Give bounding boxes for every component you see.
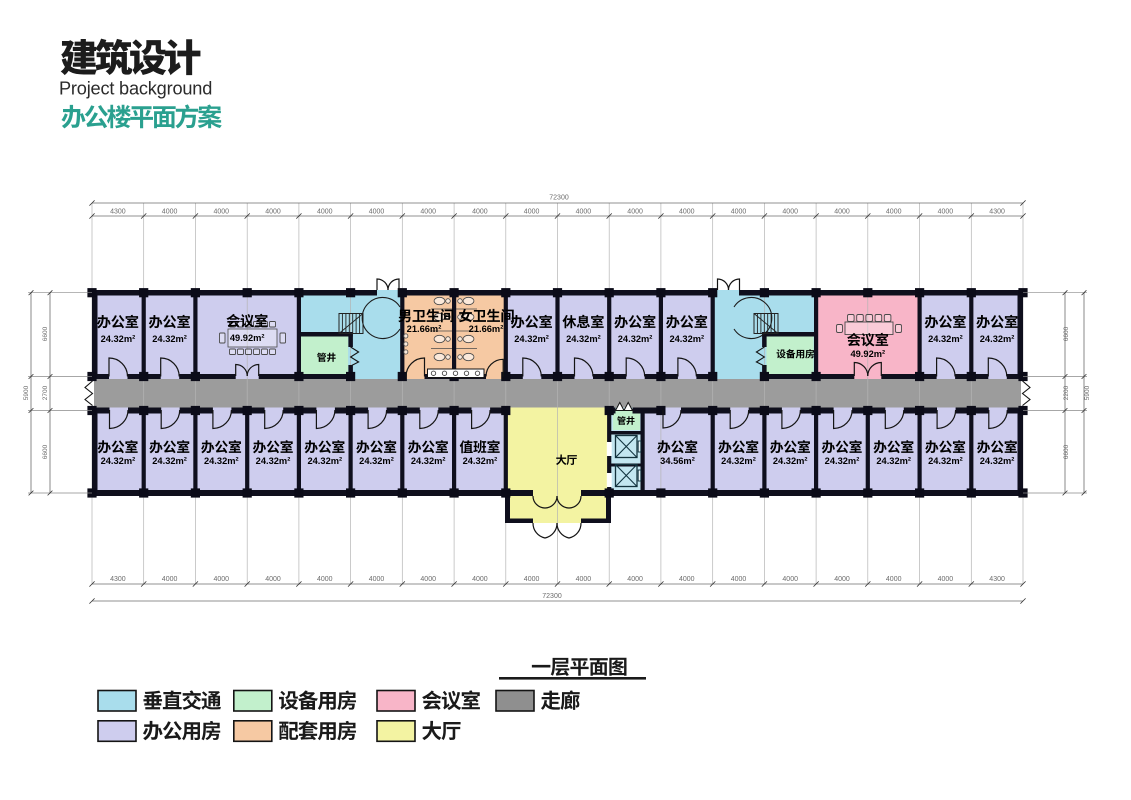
svg-text:4000: 4000 <box>524 209 540 216</box>
svg-text:4300: 4300 <box>989 209 1005 216</box>
svg-text:4300: 4300 <box>989 576 1005 583</box>
svg-text:4000: 4000 <box>782 576 798 583</box>
svg-text:24.32m²: 24.32m² <box>825 456 860 466</box>
svg-text:24.32m²: 24.32m² <box>876 456 911 466</box>
svg-text:21.66m²: 21.66m² <box>407 324 442 334</box>
svg-text:24.32m²: 24.32m² <box>463 456 498 466</box>
svg-text:6600: 6600 <box>42 444 49 459</box>
svg-text:4000: 4000 <box>214 209 230 216</box>
svg-text:4000: 4000 <box>369 209 385 216</box>
svg-text:4000: 4000 <box>472 209 488 216</box>
svg-text:21.66m²: 21.66m² <box>469 324 504 334</box>
svg-text:4000: 4000 <box>627 576 643 583</box>
svg-text:4000: 4000 <box>679 576 695 583</box>
svg-text:4000: 4000 <box>265 209 281 216</box>
svg-text:4000: 4000 <box>731 576 747 583</box>
svg-text:24.32m²: 24.32m² <box>669 334 704 344</box>
svg-text:24.32m²: 24.32m² <box>204 456 239 466</box>
svg-text:4000: 4000 <box>317 576 333 583</box>
svg-text:49.92m²: 49.92m² <box>230 333 265 343</box>
svg-text:4000: 4000 <box>627 209 643 216</box>
svg-text:4000: 4000 <box>576 576 592 583</box>
svg-text:24.32m²: 24.32m² <box>980 334 1015 344</box>
svg-text:2700: 2700 <box>42 385 49 400</box>
svg-text:6600: 6600 <box>1063 444 1070 459</box>
svg-text:4000: 4000 <box>782 209 798 216</box>
svg-text:4000: 4000 <box>162 576 178 583</box>
svg-text:24.32m²: 24.32m² <box>256 456 291 466</box>
svg-text:4000: 4000 <box>938 576 954 583</box>
svg-text:24.32m²: 24.32m² <box>411 456 446 466</box>
svg-text:24.32m²: 24.32m² <box>359 456 394 466</box>
svg-text:24.32m²: 24.32m² <box>618 334 653 344</box>
svg-text:2200: 2200 <box>1063 385 1070 400</box>
svg-text:4000: 4000 <box>265 576 281 583</box>
svg-text:4300: 4300 <box>110 576 126 583</box>
svg-text:6600: 6600 <box>42 326 49 341</box>
svg-text:34.56m²: 34.56m² <box>660 456 695 466</box>
svg-text:4000: 4000 <box>834 209 850 216</box>
svg-text:4000: 4000 <box>886 576 902 583</box>
svg-text:4000: 4000 <box>834 576 850 583</box>
svg-text:4000: 4000 <box>317 209 333 216</box>
svg-text:24.32m²: 24.32m² <box>514 334 549 344</box>
svg-text:4000: 4000 <box>162 209 178 216</box>
svg-text:6600: 6600 <box>1063 326 1070 341</box>
svg-text:24.32m²: 24.32m² <box>152 456 187 466</box>
svg-text:24.32m²: 24.32m² <box>721 456 756 466</box>
svg-text:24.32m²: 24.32m² <box>566 334 601 344</box>
svg-text:4000: 4000 <box>679 209 695 216</box>
svg-text:24.32m²: 24.32m² <box>101 456 136 466</box>
svg-text:24.32m²: 24.32m² <box>773 456 808 466</box>
svg-text:4000: 4000 <box>731 209 747 216</box>
svg-text:4000: 4000 <box>420 576 436 583</box>
svg-text:4000: 4000 <box>576 209 592 216</box>
svg-text:Project background: Project background <box>59 79 212 99</box>
svg-text:4000: 4000 <box>886 209 902 216</box>
svg-text:24.32m²: 24.32m² <box>101 334 136 344</box>
svg-text:24.32m²: 24.32m² <box>152 334 187 344</box>
svg-text:5900: 5900 <box>1084 385 1091 400</box>
svg-text:4000: 4000 <box>472 576 488 583</box>
svg-text:4000: 4000 <box>524 576 540 583</box>
svg-text:24.32m²: 24.32m² <box>307 456 342 466</box>
svg-text:4000: 4000 <box>369 576 385 583</box>
svg-text:24.32m²: 24.32m² <box>928 456 963 466</box>
svg-text:72300: 72300 <box>549 195 569 202</box>
svg-text:4000: 4000 <box>938 209 954 216</box>
svg-text:49.92m²: 49.92m² <box>850 349 885 359</box>
svg-text:24.32m²: 24.32m² <box>928 334 963 344</box>
svg-text:4300: 4300 <box>110 209 126 216</box>
svg-text:24.32m²: 24.32m² <box>980 456 1015 466</box>
svg-text:4000: 4000 <box>420 209 436 216</box>
svg-text:72300: 72300 <box>542 593 562 600</box>
svg-text:5900: 5900 <box>23 385 30 400</box>
svg-text:4000: 4000 <box>214 576 230 583</box>
